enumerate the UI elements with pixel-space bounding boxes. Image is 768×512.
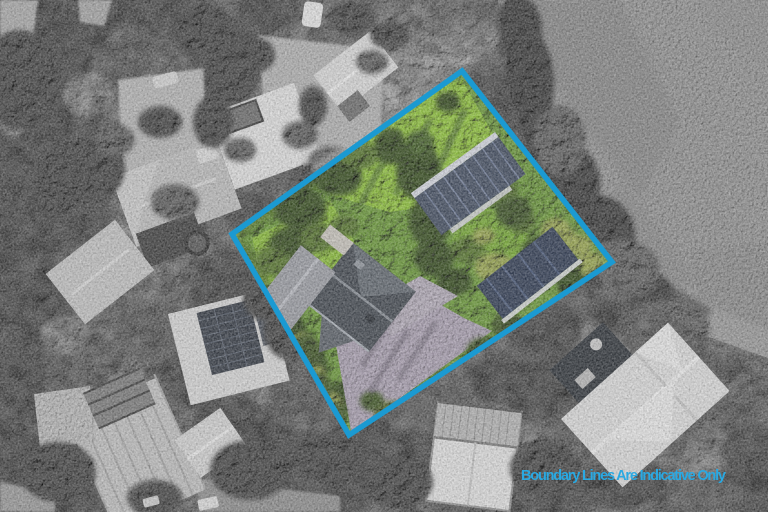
svg-text:Boundary Lines Are Indicative: Boundary Lines Are Indicative Only xyxy=(521,468,726,484)
